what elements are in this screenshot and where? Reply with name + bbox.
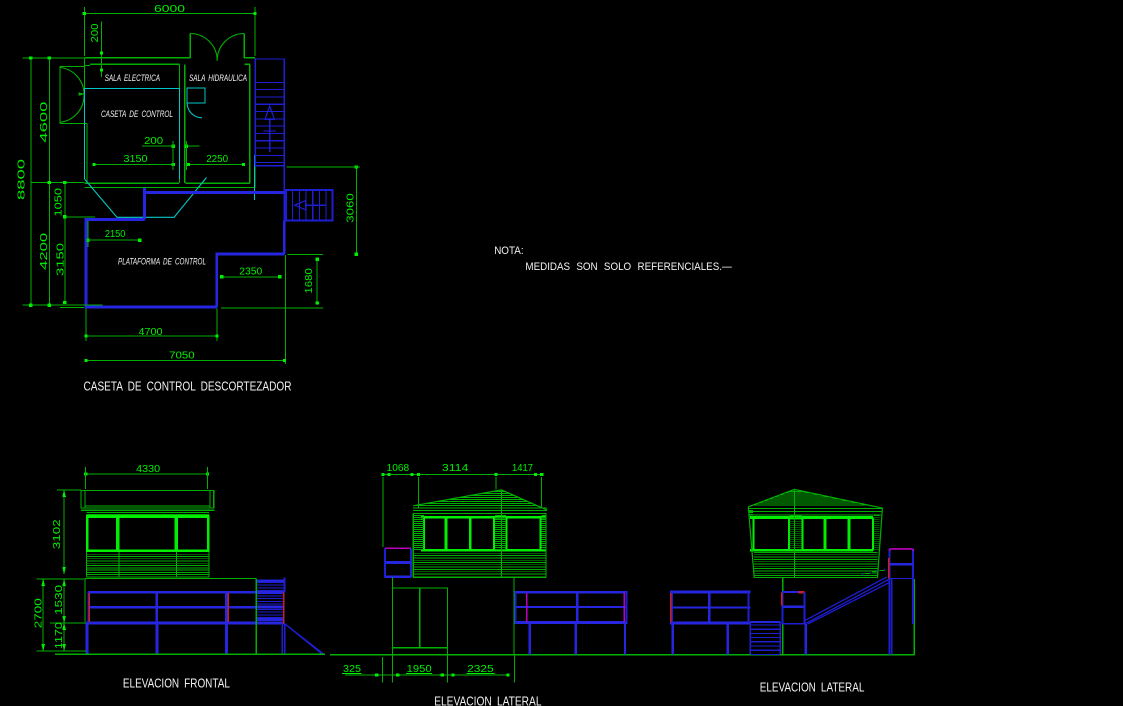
svg-text:CASETA DE CONTROL DESCORTEZADO: CASETA DE CONTROL DESCORTEZADOR bbox=[84, 379, 292, 394]
svg-text:ELEVACION FRONTAL: ELEVACION FRONTAL bbox=[123, 675, 230, 690]
svg-text:2350: 2350 bbox=[239, 266, 262, 277]
svg-text:4700: 4700 bbox=[139, 327, 163, 338]
svg-text:PLATAFORMA DE CONTROL: PLATAFORMA DE CONTROL bbox=[118, 257, 206, 267]
svg-text:3060: 3060 bbox=[346, 193, 357, 223]
svg-text:SALA HIDRAULICA: SALA HIDRAULICA bbox=[189, 73, 247, 83]
svg-text:200: 200 bbox=[144, 136, 163, 147]
svg-text:3150: 3150 bbox=[56, 242, 67, 276]
svg-text:4600: 4600 bbox=[39, 101, 50, 143]
svg-text:1680: 1680 bbox=[304, 268, 315, 294]
svg-text:1068: 1068 bbox=[387, 463, 410, 474]
svg-text:1050: 1050 bbox=[54, 187, 65, 216]
svg-text:2150: 2150 bbox=[105, 229, 126, 240]
svg-text:4330: 4330 bbox=[136, 464, 160, 475]
svg-text:NOTA:: NOTA: bbox=[494, 245, 523, 257]
svg-text:3102: 3102 bbox=[52, 519, 63, 550]
svg-text:1417: 1417 bbox=[512, 463, 533, 474]
svg-text:ELEVACION LATERAL: ELEVACION LATERAL bbox=[434, 694, 541, 706]
svg-text:4200: 4200 bbox=[39, 232, 50, 270]
svg-text:7050: 7050 bbox=[169, 351, 195, 362]
svg-text:3114: 3114 bbox=[442, 463, 469, 474]
svg-text:2250: 2250 bbox=[206, 154, 228, 165]
svg-text:ELEVACION LATERAL: ELEVACION LATERAL bbox=[760, 679, 865, 694]
svg-text:200: 200 bbox=[90, 23, 101, 42]
svg-text:6000: 6000 bbox=[154, 4, 186, 15]
svg-text:2700: 2700 bbox=[34, 598, 45, 629]
svg-text:8800: 8800 bbox=[17, 158, 28, 200]
svg-text:1170: 1170 bbox=[54, 622, 65, 650]
svg-text:1530: 1530 bbox=[54, 584, 65, 615]
svg-text:3150: 3150 bbox=[124, 154, 148, 165]
svg-text:CASETA DE CONTROL: CASETA DE CONTROL bbox=[101, 109, 173, 119]
svg-text:MEDIDAS SON SOLO REFERENCIALES: MEDIDAS SON SOLO REFERENCIALES.— bbox=[525, 261, 731, 273]
svg-text:SALA ELECTRICA: SALA ELECTRICA bbox=[105, 73, 160, 83]
